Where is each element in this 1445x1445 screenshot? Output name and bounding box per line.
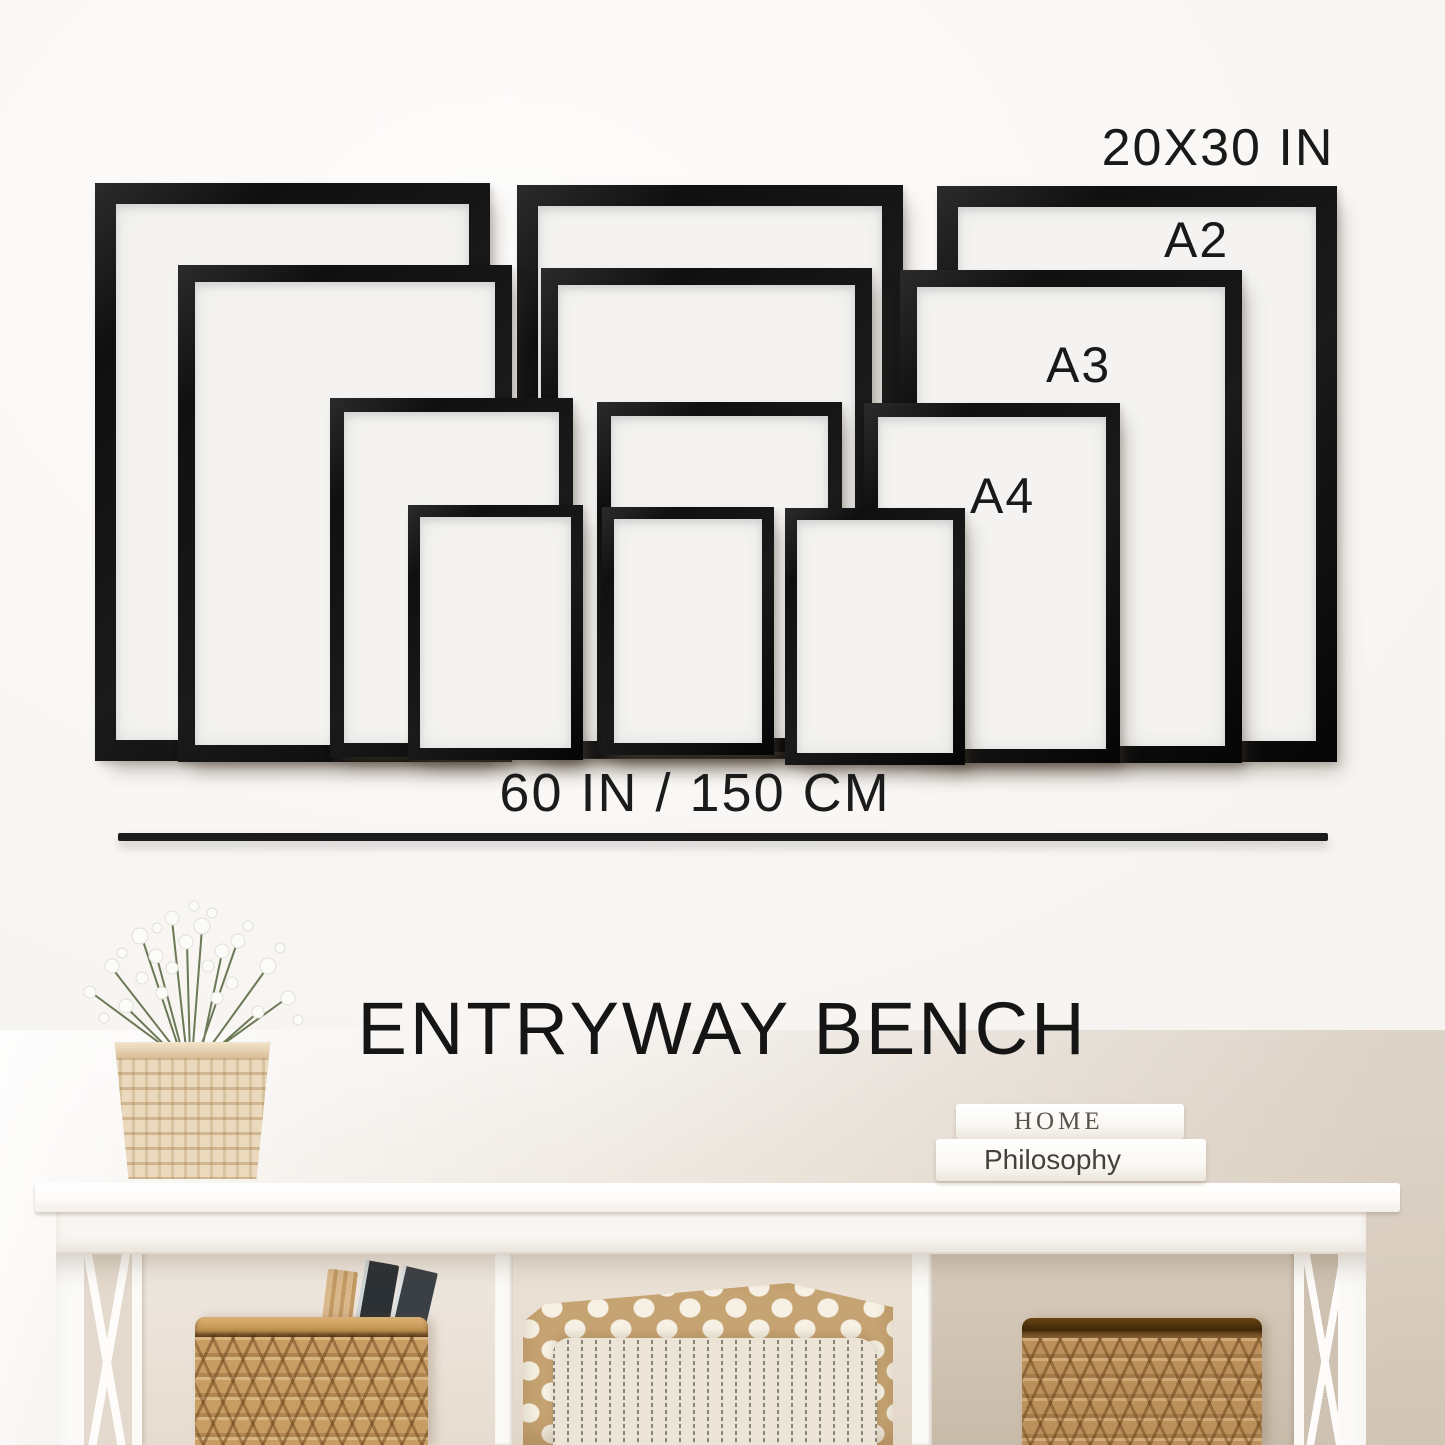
book-home: HOME [956, 1104, 1184, 1139]
bench-tabletop [35, 1183, 1400, 1212]
bench-right-leg [1338, 1252, 1366, 1445]
plant-wicker-pot [106, 1042, 279, 1179]
size-label-a3: A3 [1046, 340, 1111, 390]
frame-paper [614, 519, 762, 743]
frame-paper [797, 520, 953, 753]
pot-rim [106, 1042, 279, 1058]
measure-line [118, 833, 1328, 841]
cubby-divider-right [912, 1252, 932, 1445]
book-philosophy-title: Philosophy [936, 1146, 1121, 1174]
bench-left-leg [56, 1252, 84, 1445]
storage-basket-left [195, 1317, 428, 1445]
bench-apron [56, 1212, 1366, 1254]
product-mockup-image: 20X30 IN A2 A3 A4 60 IN / 150 CM ENTRYWA… [0, 0, 1445, 1445]
book-philosophy: Philosophy [936, 1139, 1206, 1181]
size-label-a2: A2 [1164, 215, 1229, 265]
striped-pillow [553, 1338, 877, 1445]
basket-rim [1022, 1318, 1262, 1338]
basket-rim [195, 1317, 428, 1337]
width-caption: 60 IN / 150 CM [345, 766, 1045, 820]
page-title: ENTRYWAY BENCH [255, 992, 1190, 1066]
book-home-title: HOME [956, 1109, 1104, 1134]
size-label-a4: A4 [970, 471, 1035, 521]
bench-left-x-panel [82, 1252, 132, 1445]
frame-paper [420, 517, 571, 748]
bench-cubby-row [56, 1252, 1366, 1445]
storage-basket-right [1022, 1318, 1262, 1445]
cubby-divider-left [495, 1252, 513, 1445]
frame-a4-left [408, 505, 583, 760]
frame-a4-center [602, 507, 774, 755]
frame-a4-right [785, 508, 965, 765]
size-label-20x30: 20X30 IN [1088, 122, 1348, 174]
